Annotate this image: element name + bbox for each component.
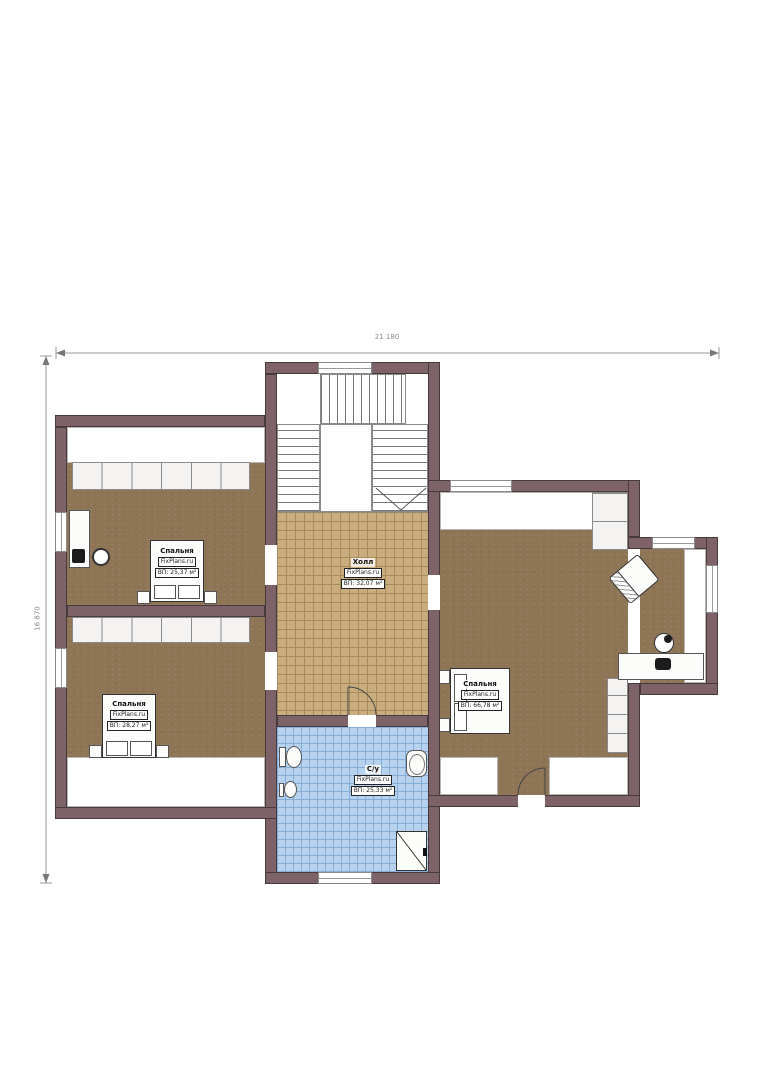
low-ceiling-zone (67, 427, 265, 463)
low-ceiling-zone (440, 757, 498, 795)
toilet-tank (279, 747, 286, 767)
plant (654, 633, 674, 653)
plant-leaves (664, 635, 672, 643)
watermark: FixPlans.ru (110, 710, 148, 720)
floor-hall (277, 512, 428, 715)
wall (706, 537, 718, 695)
staircase-right-flight (372, 424, 428, 512)
watermark: FixPlans.ru (354, 775, 392, 785)
window (450, 480, 512, 492)
dimension-label-top: 21 180 (347, 333, 427, 342)
dimension-line-top (56, 347, 719, 359)
window (652, 537, 695, 549)
door-opening (518, 795, 545, 807)
floor-plan: 21 180 16 870 (0, 0, 763, 1080)
nightstand (156, 745, 169, 758)
shower-handle (423, 848, 427, 856)
wall (628, 683, 640, 807)
room-name: Спальня (158, 547, 196, 556)
watermark: FixPlans.ru (344, 568, 382, 578)
desk-monitor (72, 549, 85, 563)
room-name: Спальня (461, 680, 499, 689)
dimension-label-left: 16 870 (34, 589, 43, 649)
room-label-bedroom-bottom-left: Спальня FixPlans.ru ВП: 28,27 м² (99, 700, 159, 731)
pillow (154, 585, 176, 599)
low-ceiling-zone (67, 757, 265, 807)
room-area: ВП: 25,33 м² (351, 786, 396, 796)
room-label-hall: Холл FixPlans.ru ВП: 32,07 м² (328, 558, 398, 589)
pillow (106, 741, 128, 756)
bidet-bowl (284, 781, 297, 798)
window (318, 362, 372, 374)
wall (628, 480, 640, 537)
toilet-bowl (286, 746, 302, 768)
door-opening (265, 652, 277, 690)
staircase-upper-flight (320, 374, 406, 424)
sink-basin (409, 754, 425, 775)
pillow (130, 741, 152, 756)
dimension-arrows-left (43, 356, 50, 883)
window (55, 648, 67, 688)
low-ceiling-zone (549, 757, 628, 795)
wall (55, 415, 265, 427)
closet-row (72, 617, 250, 643)
wall (640, 683, 718, 695)
window (318, 872, 372, 884)
pillow (178, 585, 200, 599)
room-label-bedroom-right: Спальня FixPlans.ru ВП: 66,78 м² (450, 680, 510, 711)
room-area: ВП: 32,07 м² (341, 579, 386, 589)
door-opening (348, 715, 376, 727)
nightstand (89, 745, 102, 758)
room-label-bedroom-top-left: Спальня FixPlans.ru ВП: 25,37 м² (147, 547, 207, 578)
staircase-left-flight (277, 424, 320, 512)
watermark: FixPlans.ru (158, 557, 196, 567)
wall-room-divider (67, 605, 265, 617)
closet-row (72, 462, 250, 490)
nightstand (137, 591, 150, 604)
room-name: Спальня (110, 700, 148, 709)
desk-chair (92, 548, 110, 566)
watermark: FixPlans.ru (461, 690, 499, 700)
dimension-arrows-top (56, 350, 719, 357)
door-opening (428, 575, 440, 610)
shower (396, 831, 427, 871)
window (706, 565, 718, 613)
room-name: Холл (351, 558, 375, 567)
closet-column (607, 678, 628, 753)
wall (55, 807, 277, 819)
room-area: ВП: 28,27 м² (107, 721, 152, 731)
desk-chair (655, 658, 671, 670)
room-area: ВП: 25,37 м² (155, 568, 200, 578)
room-area: ВП: 66,78 м² (458, 701, 503, 711)
window (55, 512, 67, 552)
staircase-void (320, 424, 372, 512)
door-opening (265, 545, 277, 585)
wall (55, 427, 67, 819)
nightstand (204, 591, 217, 604)
room-label-bathroom: С/у FixPlans.ru ВП: 25,33 м² (344, 765, 402, 796)
sink (406, 750, 427, 777)
wardrobe (592, 492, 628, 550)
room-name: С/у (365, 765, 381, 774)
